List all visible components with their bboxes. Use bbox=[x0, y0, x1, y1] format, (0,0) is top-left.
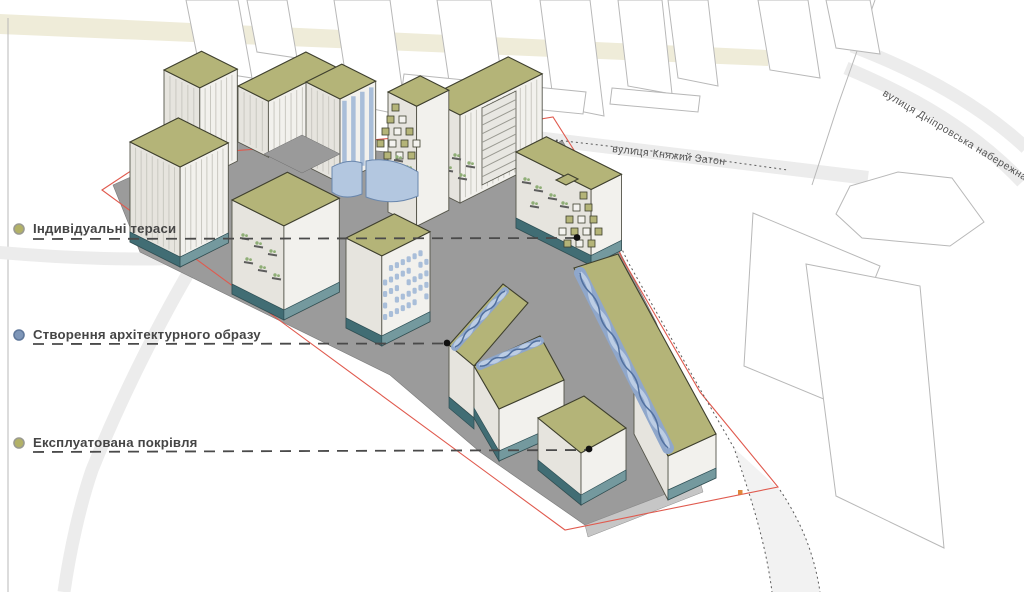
window-speck bbox=[395, 274, 399, 280]
terrace-pixel bbox=[389, 140, 396, 147]
context-tower bbox=[826, 0, 880, 54]
window-speck bbox=[424, 259, 428, 265]
plant bbox=[553, 194, 556, 197]
context-tower bbox=[668, 0, 718, 86]
window-speck bbox=[383, 303, 387, 309]
plant bbox=[259, 265, 262, 268]
orange-marker bbox=[738, 490, 743, 495]
plant bbox=[527, 178, 530, 181]
plant bbox=[449, 166, 452, 169]
window-speck bbox=[389, 288, 393, 294]
terrace-pixel bbox=[392, 104, 399, 111]
road-left-branch bbox=[64, 260, 196, 592]
terrace-pixel bbox=[578, 216, 585, 223]
window-speck bbox=[413, 288, 417, 294]
terrace-pixel bbox=[590, 216, 597, 223]
terrace-pixel bbox=[394, 128, 401, 135]
window-speck bbox=[418, 285, 422, 291]
window-speck bbox=[383, 291, 387, 297]
window-speck bbox=[407, 302, 411, 308]
plant bbox=[273, 273, 276, 276]
window-speck bbox=[407, 268, 411, 274]
terrace-pixel bbox=[583, 228, 590, 235]
leader-dot-1 bbox=[574, 234, 581, 241]
context-tower bbox=[758, 0, 820, 78]
terrace-pixel bbox=[595, 228, 602, 235]
terrace-pixel bbox=[580, 192, 587, 199]
window-speck bbox=[424, 270, 428, 276]
building-d-striped bbox=[130, 118, 228, 267]
window-speck bbox=[395, 262, 399, 268]
window-speck bbox=[401, 271, 405, 277]
building-h-terraced-tower bbox=[377, 76, 449, 226]
plant bbox=[255, 241, 258, 244]
plant bbox=[453, 153, 456, 156]
context-tower bbox=[247, 0, 297, 58]
plant bbox=[471, 162, 474, 165]
context-tower bbox=[618, 0, 672, 94]
window-speck bbox=[418, 273, 422, 279]
plant bbox=[463, 174, 466, 177]
window-speck bbox=[424, 282, 428, 288]
plant bbox=[535, 202, 538, 205]
plant bbox=[531, 201, 534, 204]
window-speck bbox=[418, 262, 422, 268]
window-speck bbox=[424, 293, 428, 299]
context-slab bbox=[610, 88, 700, 112]
plant bbox=[539, 186, 542, 189]
window-speck bbox=[395, 285, 399, 291]
street-label-knyazhyi-zaton: вулиця Княжий Затон bbox=[612, 143, 727, 168]
stair-block bbox=[482, 91, 516, 185]
leader-dot-3 bbox=[586, 446, 593, 453]
window-speck bbox=[389, 311, 393, 317]
terrace-pixel bbox=[382, 128, 389, 135]
terrace-pixel bbox=[559, 228, 566, 235]
building-e-balconies bbox=[232, 172, 339, 320]
terrace-pixel bbox=[413, 140, 420, 147]
window-speck bbox=[407, 256, 411, 262]
window-speck bbox=[401, 294, 405, 300]
plant bbox=[549, 193, 552, 196]
plant bbox=[457, 154, 460, 157]
plant bbox=[259, 242, 262, 245]
plant bbox=[399, 156, 402, 159]
building-f-speckled bbox=[346, 214, 430, 346]
blue-podium-1 bbox=[332, 161, 362, 197]
window-speck bbox=[413, 299, 417, 305]
window-speck bbox=[413, 276, 417, 282]
wall-se bbox=[417, 90, 449, 226]
plant bbox=[535, 185, 538, 188]
terrace-pixel bbox=[401, 140, 408, 147]
plant bbox=[263, 266, 266, 269]
terrace-pixel bbox=[585, 204, 592, 211]
masterplan: вулиця Княжий Затон вулиця Дніпровська н… bbox=[0, 0, 1024, 592]
plant bbox=[467, 161, 470, 164]
building-i-stairs bbox=[482, 91, 516, 185]
plant bbox=[273, 250, 276, 253]
window-speck bbox=[407, 279, 411, 285]
plant bbox=[245, 257, 248, 260]
plant bbox=[277, 274, 280, 277]
window-speck bbox=[418, 250, 422, 256]
plant bbox=[561, 201, 564, 204]
leader-dot-2 bbox=[444, 340, 451, 347]
plant bbox=[395, 155, 398, 158]
terrace-pixel bbox=[406, 128, 413, 135]
window-speck bbox=[395, 308, 399, 314]
footpath bbox=[734, 448, 820, 592]
plant bbox=[269, 249, 272, 252]
plant bbox=[245, 234, 248, 237]
terrace-pixel bbox=[564, 240, 571, 247]
terrace-pixel bbox=[377, 140, 384, 147]
window-speck bbox=[383, 280, 387, 286]
plant bbox=[249, 258, 252, 261]
plant bbox=[523, 177, 526, 180]
window-speck bbox=[407, 291, 411, 297]
window-speck bbox=[401, 259, 405, 265]
terrace-pixel bbox=[384, 152, 391, 159]
window-speck bbox=[389, 265, 393, 271]
window-speck bbox=[389, 277, 393, 283]
plant bbox=[565, 202, 568, 205]
terrace-pixel bbox=[387, 116, 394, 123]
leader-line-1 bbox=[33, 238, 577, 239]
window-speck bbox=[383, 314, 387, 320]
window-speck bbox=[413, 253, 417, 259]
masterplan-canvas: вулиця Княжий Затон вулиця Дніпровська н… bbox=[0, 0, 1024, 592]
plant bbox=[241, 233, 244, 236]
plant bbox=[459, 173, 462, 176]
window-speck bbox=[395, 297, 399, 303]
terrace-pixel bbox=[571, 228, 578, 235]
leader-line-2 bbox=[33, 344, 447, 345]
terrace-pixel bbox=[588, 240, 595, 247]
terrace-pixel bbox=[399, 116, 406, 123]
terrace-pixel bbox=[408, 152, 415, 159]
context-block-right-2 bbox=[806, 264, 944, 548]
context-blob bbox=[836, 172, 984, 246]
terrace-pixel bbox=[576, 240, 583, 247]
road-naberezhna-1 bbox=[852, 46, 1024, 148]
terrace-pixel bbox=[566, 216, 573, 223]
window-speck bbox=[401, 305, 405, 311]
terrace-pixel bbox=[573, 204, 580, 211]
